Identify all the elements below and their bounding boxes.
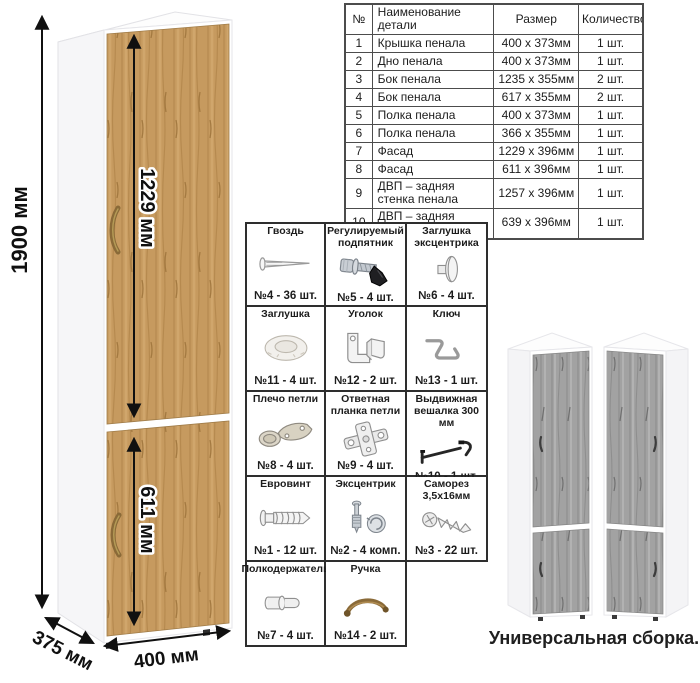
hinge-plate-icon [337, 418, 395, 461]
variant-foot [538, 617, 543, 621]
table-cell: 2 шт. [579, 88, 643, 106]
hardware-item: Ручка№14 - 2 шт. [326, 562, 407, 647]
upper-door [107, 24, 229, 424]
table-cell: 3 [345, 70, 372, 88]
table-cell: 1235 х 355мм [494, 70, 579, 88]
hardware-item: Плечо петли№8 - 4 шт. [245, 392, 326, 477]
hardware-item: Эксцентрик№2 - 4 комп. [326, 477, 407, 562]
table-header-row: №Наименование деталиРазмерКоличество [345, 4, 643, 34]
table-header-cell: Размер [494, 4, 579, 34]
table-cell: 1 шт. [579, 208, 643, 238]
hardware-item-count: №4 - 36 шт. [254, 290, 317, 302]
hardware-item: Евровинт№1 - 12 шт. [245, 477, 326, 562]
variant-foot [612, 615, 617, 619]
hardware-item: Полкодержатель№7 - 4 шт. [245, 562, 326, 647]
hardware-item-title: Регулируемый подпятник [327, 226, 404, 250]
table-row: 3Бок пенала1235 х 355мм2 шт. [345, 70, 643, 88]
table-cell: 1 шт. [579, 178, 643, 208]
hardware-item: Уголок№12 - 2 шт. [326, 307, 407, 392]
depth-dimension-label: 375 мм [29, 627, 97, 675]
hinge-arm-icon [255, 406, 317, 460]
hardware-item-title: Эксцентрик [335, 479, 395, 491]
cabinet-side-face [58, 30, 104, 643]
euro-screw-icon [255, 491, 317, 545]
table-cell: ДВП – задняя стенка пенала [372, 178, 494, 208]
shelf-pin-icon [257, 576, 315, 630]
table-row: 9ДВП – задняя стенка пенала1257 х 396мм1… [345, 178, 643, 208]
table-row: 4Бок пенала617 х 355мм2 шт. [345, 88, 643, 106]
table-header-cell: Наименование детали [372, 4, 494, 34]
hardware-item-title: Выдвижная вешалка 300 мм [408, 394, 485, 429]
table-cell: Фасад [372, 142, 494, 160]
hardware-item: Саморез 3,5х16мм№3 - 22 шт. [407, 477, 488, 562]
hardware-item: Заглушка эксцентрика№6 - 4 шт. [407, 222, 488, 307]
height-dimension-label: 1900 мм [7, 186, 32, 274]
table-cell: 400 х 373мм [494, 106, 579, 124]
hardware-item-count: №2 - 4 комп. [330, 545, 400, 557]
table-cell: 1 шт. [579, 160, 643, 178]
table-cell: 617 х 355мм [494, 88, 579, 106]
hardware-item: Ответная планка петли№9 - 4 шт. [326, 392, 407, 477]
variant-foot [580, 615, 585, 619]
hardware-item-title: Евровинт [260, 479, 311, 491]
lower-door-dimension-label: 611 мм [136, 486, 158, 553]
handle-icon [336, 576, 396, 630]
assembly-variants-drawing [496, 325, 700, 630]
hardware-item-title: Заглушка [261, 309, 310, 321]
table-cell: Крышка пенала [372, 34, 494, 52]
hardware-item-count: №8 - 4 шт. [257, 460, 313, 472]
hardware-item-count: №13 - 1 шт. [415, 375, 478, 387]
parts-table: №Наименование деталиРазмерКоличество 1Кр… [344, 3, 644, 240]
table-cell: 5 [345, 106, 372, 124]
cabinet-drawing: 1900 мм 1229 мм 611 мм 375 мм 400 мм [0, 0, 240, 683]
adjustable-foot-icon [335, 250, 397, 292]
table-cell: 1229 х 396мм [494, 142, 579, 160]
hardware-item-title: Уголок [348, 309, 383, 321]
hardware-item: Гвоздь№4 - 36 шт. [245, 222, 326, 307]
table-cell: 2 шт. [579, 70, 643, 88]
cam-cover-icon [418, 250, 476, 291]
hardware-item-count: №1 - 12 шт. [254, 545, 317, 557]
table-cell: Полка пенала [372, 124, 494, 142]
table-cell: 611 х 396мм [494, 160, 579, 178]
table-cell: 1 [345, 34, 372, 52]
hardware-item-count: №5 - 4 шт. [337, 292, 393, 304]
table-row: 8Фасад611 х 396мм1 шт. [345, 160, 643, 178]
cabinet-doors [107, 24, 229, 636]
hardware-item-count: №12 - 2 шт. [334, 375, 397, 387]
hardware-item-count: №11 - 4 шт. [254, 375, 316, 387]
table-header-cell: № [345, 4, 372, 34]
table-cell: Бок пенала [372, 70, 494, 88]
hardware-item-title: Полкодержатель [241, 564, 329, 576]
pullout-hanger-icon [416, 429, 478, 471]
table-cell: Бок пенала [372, 88, 494, 106]
hardware-item-title: Ручка [350, 564, 380, 576]
width-dimension-label: 400 мм [133, 644, 200, 673]
lower-door [107, 421, 229, 636]
cam-lock-icon [336, 491, 396, 545]
left-variant-cabinet [508, 333, 592, 621]
upper-door-dimension-label: 1229 мм [136, 168, 158, 248]
table-cell: 6 [345, 124, 372, 142]
table-cell: 366 х 355мм [494, 124, 579, 142]
table-cell: 400 х 373мм [494, 52, 579, 70]
hardware-item-title: Заглушка эксцентрика [408, 226, 485, 250]
table-cell: 8 [345, 160, 372, 178]
table-row: 7Фасад1229 х 396мм1 шт. [345, 142, 643, 160]
hardware-item-title: Плечо петли [253, 394, 318, 406]
table-cell: Фасад [372, 160, 494, 178]
table-cell: 1257 х 396мм [494, 178, 579, 208]
right-variant-cabinet [604, 333, 688, 621]
hardware-grid: Гвоздь№4 - 36 шт.Регулируемый подпятник№… [245, 222, 488, 647]
table-cell: 639 х 396мм [494, 208, 579, 238]
table-row: 2Дно пенала400 х 373мм1 шт. [345, 52, 643, 70]
nail-icon [256, 238, 316, 290]
table-row: 1Крышка пенала400 х 373мм1 шт. [345, 34, 643, 52]
hardware-item: Ключ№13 - 1 шт. [407, 307, 488, 392]
hardware-item-title: Саморез 3,5х16мм [408, 479, 485, 503]
table-cell: 4 [345, 88, 372, 106]
hardware-item: Выдвижная вешалка 300 мм№10 - 1 шт. [407, 392, 488, 477]
table-header-cell: Количество [579, 4, 643, 34]
self-tapping-screw-icon [417, 503, 477, 546]
hardware-item-title: Ключ [433, 309, 461, 321]
table-cell: 7 [345, 142, 372, 160]
table-row: 6Полка пенала366 х 355мм1 шт. [345, 124, 643, 142]
assembly-caption: Универсальная сборка. [488, 628, 700, 649]
hex-key-icon [417, 321, 477, 375]
hardware-item: Регулируемый подпятник№5 - 4 шт. [326, 222, 407, 307]
table-cell: Полка пенала [372, 106, 494, 124]
hardware-item-count: №3 - 22 шт. [415, 545, 478, 557]
hardware-item-count: №6 - 4 шт. [418, 290, 474, 302]
table-cell: 2 [345, 52, 372, 70]
table-cell: 1 шт. [579, 106, 643, 124]
corner-bracket-icon [336, 321, 396, 375]
table-cell: 9 [345, 178, 372, 208]
table-cell: 1 шт. [579, 34, 643, 52]
hardware-item-count: №9 - 4 шт. [337, 460, 393, 472]
table-cell: 1 шт. [579, 142, 643, 160]
table-row: 5Полка пенала400 х 373мм1 шт. [345, 106, 643, 124]
variant-side-face [508, 349, 530, 617]
cap-icon [256, 321, 316, 375]
hardware-item-count: №14 - 2 шт. [334, 630, 397, 642]
hardware-item-count: №7 - 4 шт. [257, 630, 313, 642]
table-cell: 400 х 373мм [494, 34, 579, 52]
table-cell: 1 шт. [579, 124, 643, 142]
table-cell: 1 шт. [579, 52, 643, 70]
hardware-item-title: Ответная планка петли [327, 394, 404, 418]
assembly-sheet: 1900 мм 1229 мм 611 мм 375 мм 400 мм №На… [0, 0, 700, 683]
variant-side-face [666, 349, 688, 617]
hardware-item-title: Гвоздь [267, 226, 304, 238]
table-cell: Дно пенала [372, 52, 494, 70]
variant-foot [653, 617, 658, 621]
hardware-item: Заглушка№11 - 4 шт. [245, 307, 326, 392]
